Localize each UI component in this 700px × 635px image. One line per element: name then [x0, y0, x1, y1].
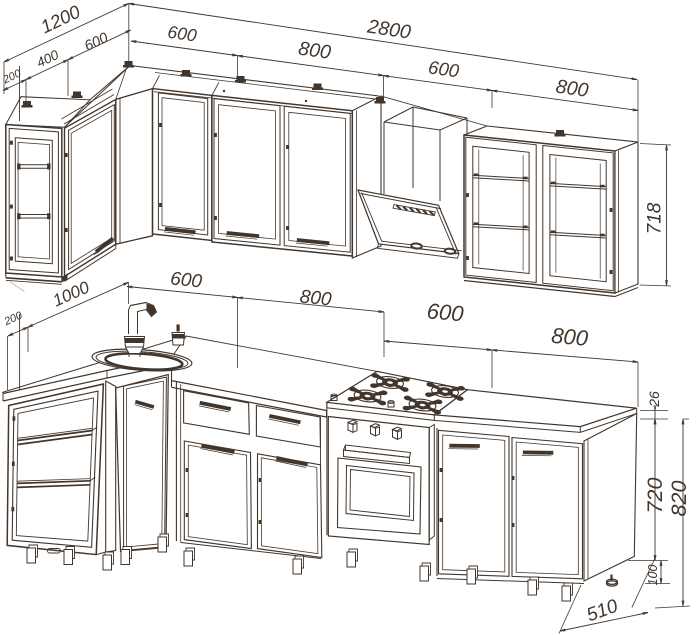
svg-text:600: 600 — [166, 22, 198, 46]
svg-text:820: 820 — [667, 481, 691, 517]
svg-text:800: 800 — [299, 286, 333, 310]
svg-text:800: 800 — [297, 38, 332, 64]
svg-text:720: 720 — [643, 478, 667, 514]
svg-text:26: 26 — [646, 391, 662, 408]
svg-text:800: 800 — [550, 323, 590, 351]
svg-text:600: 600 — [427, 56, 461, 81]
svg-text:718: 718 — [645, 202, 666, 234]
svg-text:600: 600 — [426, 298, 466, 326]
svg-text:800: 800 — [554, 76, 589, 102]
svg-text:100: 100 — [646, 565, 660, 586]
svg-text:600: 600 — [169, 268, 203, 292]
